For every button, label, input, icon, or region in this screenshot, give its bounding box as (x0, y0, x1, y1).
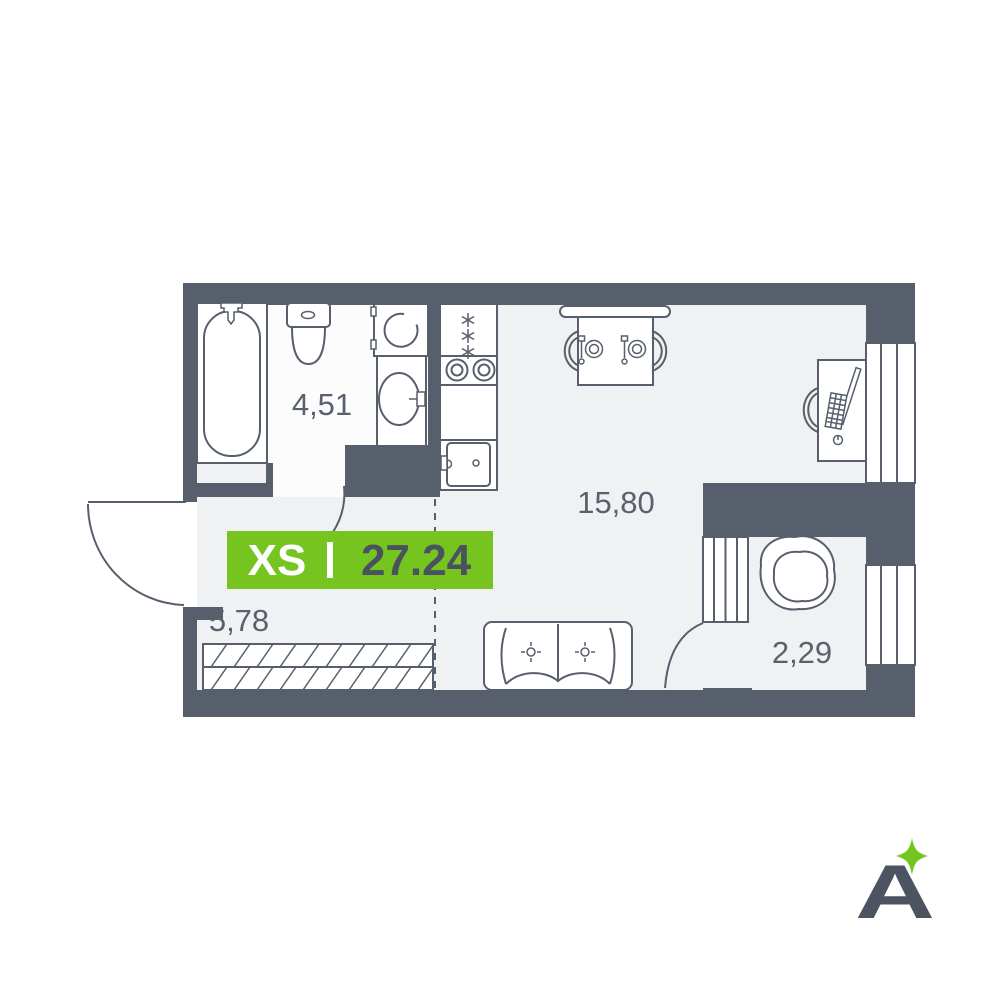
sink-faucet-icon (417, 392, 425, 406)
kitchen-living-area-label: 15,80 (577, 485, 655, 520)
developer-logo: A (855, 838, 935, 935)
kitchen-sink-icon (441, 443, 490, 486)
dining-console (560, 306, 670, 317)
hallway-wardrobe (203, 644, 433, 690)
apartment-type-badge: XS 27.24 (227, 531, 493, 589)
wall-corner-top-right (866, 283, 915, 343)
wall-dressing-room-top (703, 483, 915, 537)
sofa (484, 622, 632, 690)
dressing-room-shelving (703, 537, 748, 622)
hallway-area-label: 5,78 (209, 603, 269, 638)
washing-machine (371, 304, 428, 356)
dressing-room-area-label: 2,29 (772, 635, 832, 670)
floor-plan: 4,51 15,80 5,78 2,29 XS 27.24 (88, 283, 915, 717)
wall-bottom-stub (703, 688, 752, 717)
badge-area-value: 27.24 (361, 536, 472, 585)
wall-duct-block (345, 445, 438, 497)
armchair (760, 536, 834, 609)
badge-size-label: XS (248, 536, 307, 585)
kitchen-unit (440, 304, 497, 490)
bathroom-area-label: 4,51 (292, 387, 352, 422)
wall-top (183, 283, 866, 305)
entrance-door-swing (88, 504, 184, 605)
toilet-button-icon (302, 312, 315, 319)
wall-left-top (183, 283, 197, 502)
wall-right-mid (866, 537, 915, 565)
badge-divider (327, 542, 333, 578)
entrance-door (88, 502, 186, 605)
floor-plan-canvas: 4,51 15,80 5,78 2,29 XS 27.24 A (0, 0, 1000, 1000)
window-bottom (866, 565, 915, 665)
wall-bathroom-door-jamb (266, 463, 273, 497)
wall-bottom (183, 690, 915, 717)
bathtub (197, 303, 267, 463)
wall-bathroom-bottom (183, 483, 273, 497)
wall-left-bottom (183, 607, 197, 717)
bathroom-sink (377, 356, 426, 446)
logo-letter: A (855, 850, 935, 935)
bathroom-doorway-floor (273, 463, 348, 497)
window-top (866, 343, 915, 483)
